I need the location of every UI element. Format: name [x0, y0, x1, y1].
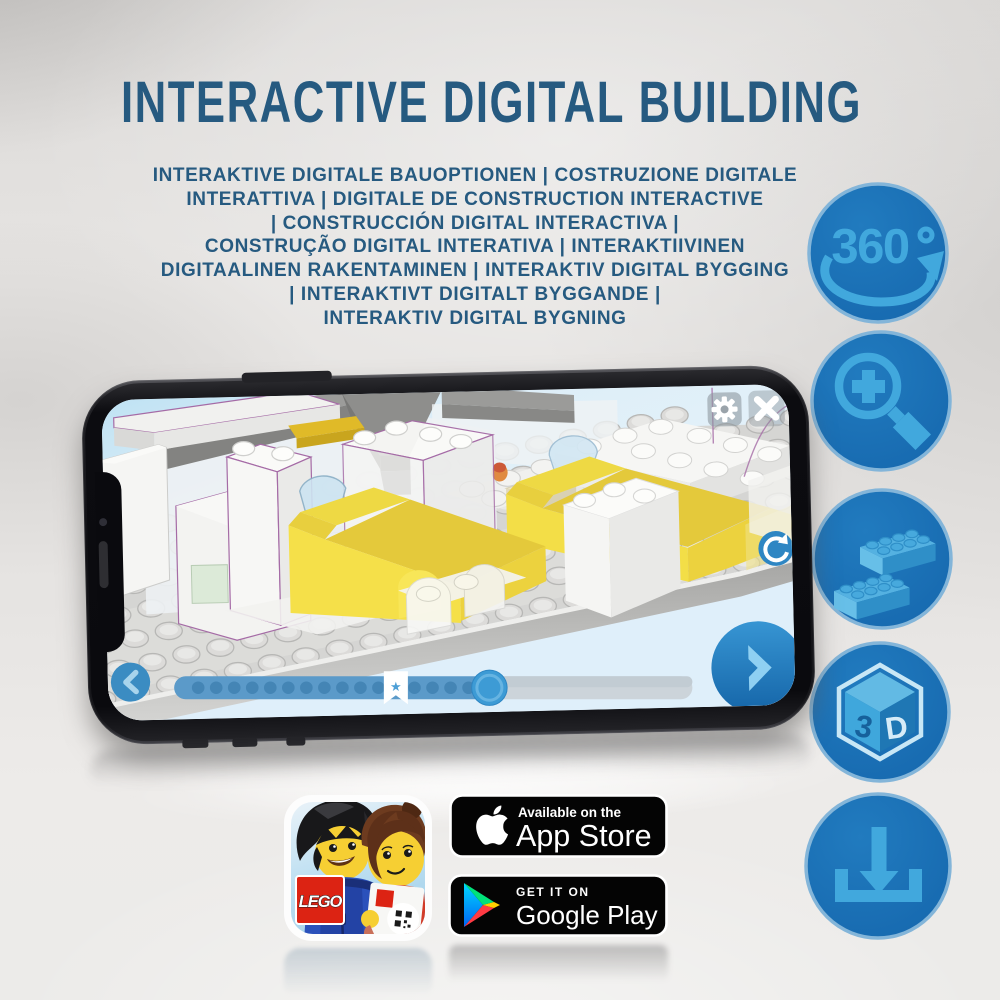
- svg-text:Available on the: Available on the: [518, 805, 622, 820]
- svg-text:Google Play: Google Play: [516, 900, 658, 930]
- svg-text:★: ★: [390, 679, 402, 694]
- svg-text:360: 360: [831, 220, 909, 274]
- svg-text:App Store: App Store: [516, 819, 652, 853]
- svg-text:LEGO: LEGO: [299, 893, 343, 911]
- svg-text:GET IT ON: GET IT ON: [516, 885, 590, 899]
